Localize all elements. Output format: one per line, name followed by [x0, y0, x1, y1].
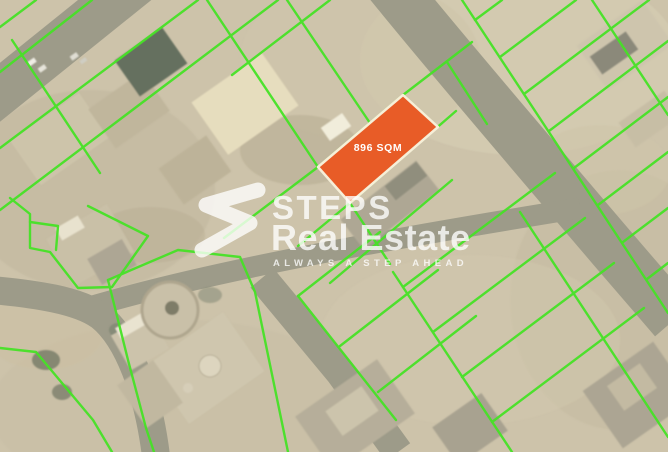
mosque-courtyard-center	[165, 301, 179, 315]
mosque-dome-small	[183, 383, 193, 393]
satellite-map-image: 896 SQM STEPS Real Estate ALWAYS A STEP …	[0, 0, 668, 452]
vegetation	[198, 287, 222, 303]
watermark-brand-bottom: Real Estate	[271, 217, 471, 258]
plot-area-label: 896 SQM	[354, 142, 403, 154]
map-canvas: 896 SQM STEPS Real Estate ALWAYS A STEP …	[0, 0, 668, 452]
mosque-dome	[199, 355, 221, 377]
watermark-tagline: ALWAYS A STEP AHEAD	[273, 258, 468, 269]
